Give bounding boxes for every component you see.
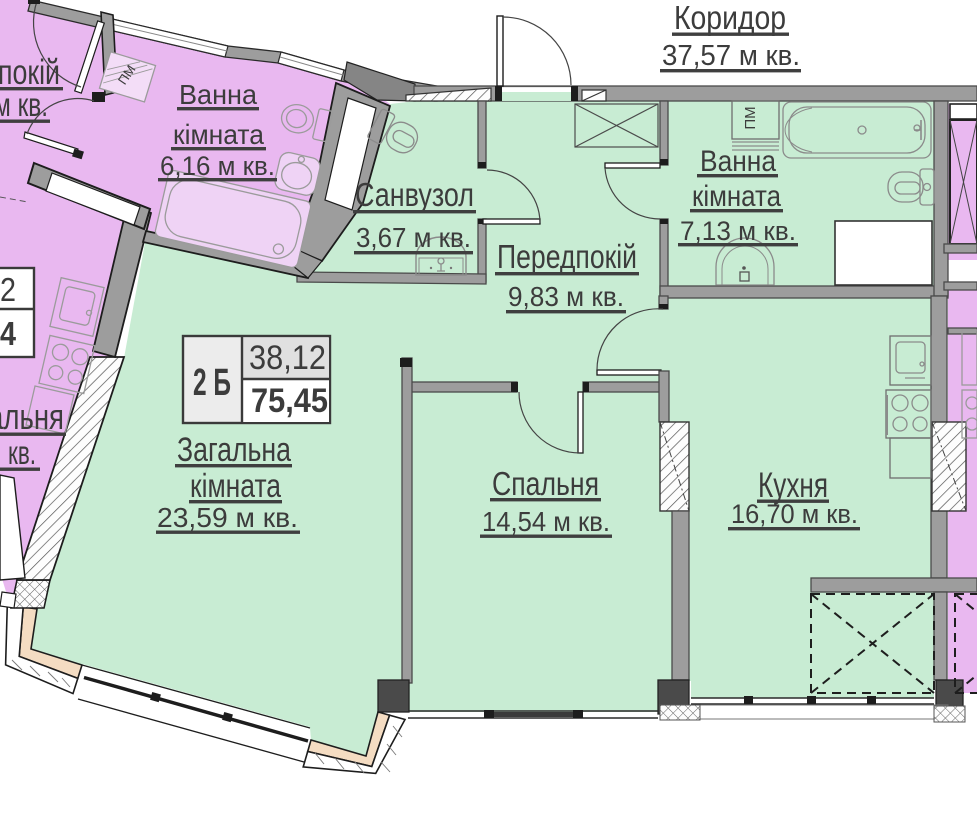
svg-text:Ванна: Ванна bbox=[179, 79, 257, 110]
svg-text:кімната: кімната bbox=[692, 180, 781, 213]
svg-text:Передпокій: Передпокій bbox=[497, 238, 637, 275]
svg-text:38,12: 38,12 bbox=[249, 339, 326, 377]
svg-text:3,67 м кв.: 3,67 м кв. bbox=[356, 222, 471, 253]
svg-text:75,45: 75,45 bbox=[251, 382, 328, 420]
svg-text:ПМ: ПМ bbox=[742, 106, 759, 129]
svg-text:9,83 м кв.: 9,83 м кв. bbox=[508, 281, 624, 312]
svg-text:4: 4 bbox=[0, 315, 17, 352]
svg-text:14,54 м кв.: 14,54 м кв. bbox=[482, 506, 610, 537]
svg-text:6,16 м кв.: 6,16 м кв. bbox=[160, 151, 275, 181]
svg-text:Коридор: Коридор bbox=[674, 0, 786, 36]
svg-text:Загальна: Загальна bbox=[177, 431, 291, 469]
svg-text:2: 2 bbox=[0, 271, 16, 308]
svg-text:Санвузол: Санвузол bbox=[355, 176, 474, 213]
svg-text:2 Б: 2 Б bbox=[193, 362, 231, 404]
svg-text:16,70 м кв.: 16,70 м кв. bbox=[731, 499, 858, 529]
svg-text:альня: альня bbox=[0, 396, 64, 437]
svg-text:м кв.: м кв. bbox=[0, 86, 48, 123]
svg-text:кімната: кімната bbox=[173, 119, 264, 150]
svg-text:7,13 м кв.: 7,13 м кв. bbox=[680, 216, 796, 246]
svg-text:23,59 м кв.: 23,59 м кв. bbox=[157, 502, 298, 533]
svg-text:кв.: кв. bbox=[8, 434, 36, 471]
svg-text:Ванна: Ванна bbox=[700, 145, 776, 178]
svg-text:Спальня: Спальня bbox=[492, 465, 599, 502]
svg-text:37,57 м кв.: 37,57 м кв. bbox=[662, 40, 800, 72]
svg-text:кімната: кімната bbox=[190, 467, 282, 504]
